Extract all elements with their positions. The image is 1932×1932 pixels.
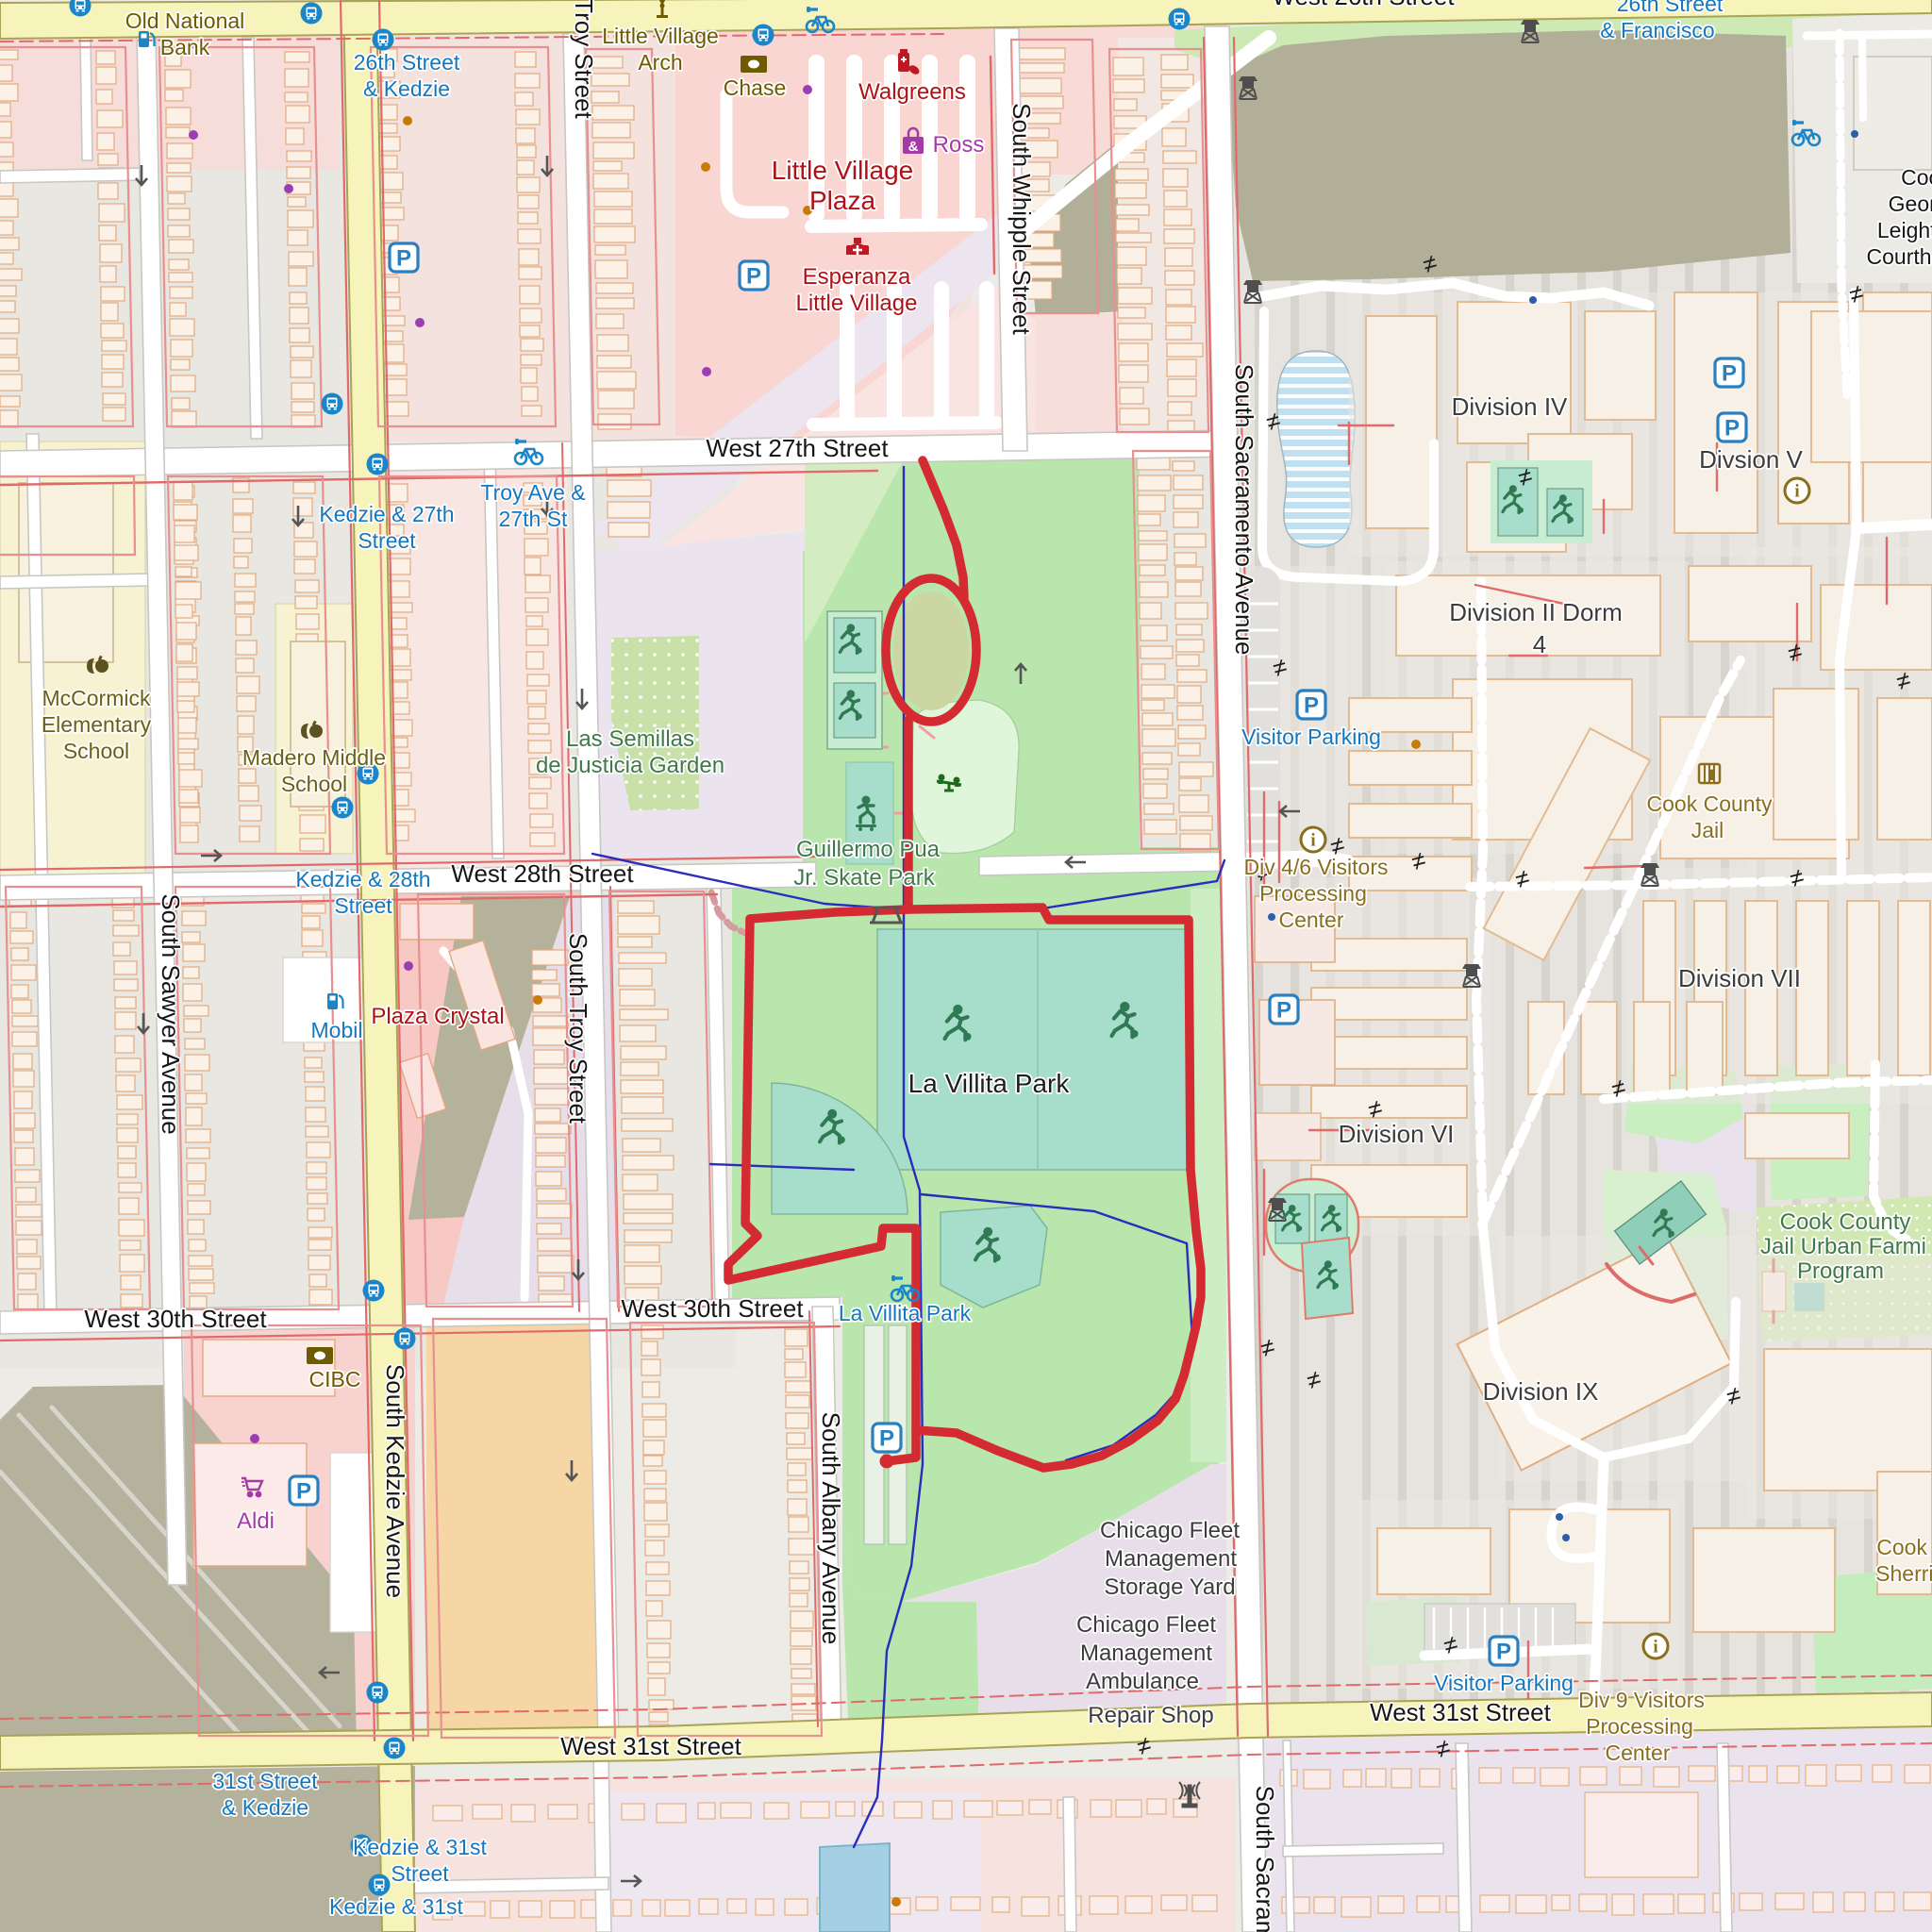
svg-text:P: P bbox=[1722, 361, 1737, 387]
svg-text:Esperanza: Esperanza bbox=[803, 264, 911, 290]
svg-text:West 30th Street: West 30th Street bbox=[621, 1294, 804, 1323]
svg-text:Cook Co: Cook Co bbox=[1876, 1535, 1932, 1559]
svg-text:Kedzie & 28th: Kedzie & 28th bbox=[295, 867, 430, 891]
svg-text:31st Street: 31st Street bbox=[212, 1769, 318, 1793]
svg-text:Chase: Chase bbox=[724, 75, 786, 100]
svg-text:Chicago Fleet: Chicago Fleet bbox=[1076, 1612, 1216, 1638]
svg-text:Div 4/6 Visitors: Div 4/6 Visitors bbox=[1244, 855, 1389, 879]
svg-text:Las Semillas: Las Semillas bbox=[566, 726, 694, 752]
svg-text:Guillermo Pua: Guillermo Pua bbox=[796, 837, 941, 862]
svg-text:CIBC: CIBC bbox=[309, 1367, 361, 1391]
svg-text:George: George bbox=[1889, 192, 1932, 216]
svg-text:Mobil: Mobil bbox=[311, 1018, 363, 1042]
svg-text:Aldi: Aldi bbox=[237, 1508, 275, 1534]
svg-text:Street: Street bbox=[358, 528, 416, 553]
svg-text:& Kedzie: & Kedzie bbox=[363, 76, 450, 101]
svg-text:Elementary: Elementary bbox=[42, 712, 152, 737]
svg-text:Kedzie & 31st: Kedzie & 31st bbox=[329, 1894, 464, 1919]
svg-text:South Troy Street: South Troy Street bbox=[564, 933, 592, 1124]
svg-text:Jail Urban Farmi: Jail Urban Farmi bbox=[1760, 1234, 1926, 1259]
svg-text:Walgreens: Walgreens bbox=[858, 79, 966, 105]
svg-text:de Justicia Garden: de Justicia Garden bbox=[536, 753, 724, 778]
svg-text:Program: Program bbox=[1797, 1258, 1884, 1284]
svg-text:South Sacram: South Sacram bbox=[1251, 1786, 1279, 1932]
svg-text:La Villita Park: La Villita Park bbox=[908, 1069, 1071, 1098]
svg-text:26th Street: 26th Street bbox=[1617, 0, 1724, 16]
svg-text:Troy Street: Troy Street bbox=[570, 0, 598, 120]
svg-text:South Kedzie Avenue: South Kedzie Avenue bbox=[381, 1364, 409, 1598]
svg-text:& Francisco: & Francisco bbox=[1600, 18, 1714, 42]
svg-text:Kedzie & 27th: Kedzie & 27th bbox=[319, 502, 454, 526]
svg-text:Leighton: Leighton bbox=[1877, 218, 1932, 242]
svg-text:South Sacramento Avenue: South Sacramento Avenue bbox=[1230, 364, 1258, 656]
svg-text:Divsion V: Divsion V bbox=[1699, 445, 1803, 474]
svg-text:West 31st Street: West 31st Street bbox=[560, 1732, 741, 1760]
svg-text:Cook County: Cook County bbox=[1647, 791, 1773, 816]
svg-text:P: P bbox=[1496, 1640, 1511, 1665]
svg-text:Cook: Cook bbox=[1901, 165, 1932, 190]
svg-text:Chicago Fleet: Chicago Fleet bbox=[1100, 1518, 1240, 1543]
svg-text:Repair Shop: Repair Shop bbox=[1088, 1703, 1213, 1728]
svg-text:& Kedzie: & Kedzie bbox=[222, 1795, 308, 1820]
svg-text:Troy Ave &: Troy Ave & bbox=[480, 480, 585, 505]
svg-text:South Albany Avenue: South Albany Avenue bbox=[817, 1412, 845, 1645]
svg-text:Little Village: Little Village bbox=[796, 291, 918, 316]
svg-text:&: & bbox=[908, 139, 919, 155]
svg-text:Visitor Parking: Visitor Parking bbox=[1434, 1671, 1574, 1695]
svg-text:Sherrif's: Sherrif's bbox=[1875, 1561, 1932, 1586]
svg-text:Division VI: Division VI bbox=[1339, 1120, 1455, 1148]
svg-text:i: i bbox=[1794, 482, 1799, 502]
svg-text:27th St: 27th St bbox=[499, 507, 568, 531]
svg-text:Plaza: Plaza bbox=[809, 186, 875, 215]
svg-text:Center: Center bbox=[1278, 908, 1343, 932]
svg-text:P: P bbox=[296, 1479, 311, 1505]
svg-text:P: P bbox=[1724, 416, 1740, 441]
svg-text:La Villita Park: La Villita Park bbox=[839, 1301, 972, 1325]
svg-text:Bank: Bank bbox=[160, 35, 210, 59]
svg-text:Processing: Processing bbox=[1586, 1714, 1693, 1739]
svg-text:School: School bbox=[281, 772, 347, 796]
svg-text:School: School bbox=[63, 739, 129, 763]
svg-text:26th Street: 26th Street bbox=[354, 50, 460, 75]
svg-text:Visitor Parking: Visitor Parking bbox=[1241, 724, 1381, 749]
svg-text:Ross: Ross bbox=[933, 132, 985, 158]
svg-text:Storage Yard: Storage Yard bbox=[1104, 1574, 1235, 1600]
svg-text:West 28th Street: West 28th Street bbox=[451, 859, 634, 888]
svg-text:P: P bbox=[1276, 998, 1291, 1024]
svg-text:Old National: Old National bbox=[125, 8, 245, 33]
svg-text:West 27th Street: West 27th Street bbox=[706, 434, 889, 462]
svg-text:P: P bbox=[1304, 693, 1319, 719]
svg-text:West 30th Street: West 30th Street bbox=[84, 1305, 267, 1333]
svg-text:Division IV: Division IV bbox=[1452, 392, 1568, 421]
svg-text:Division II Dorm: Division II Dorm bbox=[1449, 598, 1622, 626]
svg-text:P: P bbox=[746, 264, 761, 290]
svg-text:P: P bbox=[396, 246, 411, 272]
svg-text:Processing: Processing bbox=[1259, 881, 1367, 906]
svg-text:Little Village: Little Village bbox=[772, 156, 913, 185]
svg-text:Street: Street bbox=[334, 893, 392, 918]
svg-text:Courthouse: Courthouse bbox=[1867, 244, 1932, 269]
svg-text:Center: Center bbox=[1605, 1740, 1670, 1765]
svg-text:Jr. Skate Park: Jr. Skate Park bbox=[793, 865, 935, 891]
svg-text:South Whipple Street: South Whipple Street bbox=[1008, 103, 1036, 335]
svg-text:West 31st Street: West 31st Street bbox=[1370, 1698, 1551, 1726]
svg-text:Jail: Jail bbox=[1691, 818, 1724, 842]
svg-text:i: i bbox=[1310, 831, 1315, 851]
svg-text:i: i bbox=[1653, 1638, 1657, 1657]
svg-text:Div 9 Visitors: Div 9 Visitors bbox=[1578, 1688, 1705, 1712]
svg-text:Kedzie & 31st: Kedzie & 31st bbox=[353, 1835, 488, 1859]
svg-text:Street: Street bbox=[391, 1861, 449, 1886]
svg-text:4: 4 bbox=[1533, 630, 1546, 658]
svg-text:West 26th Street: West 26th Street bbox=[1272, 0, 1455, 10]
svg-text:Management: Management bbox=[1105, 1546, 1237, 1572]
svg-text:Arch: Arch bbox=[638, 50, 682, 75]
svg-text:Management: Management bbox=[1080, 1641, 1212, 1666]
svg-text:South Sawyer Avenue: South Sawyer Avenue bbox=[157, 893, 185, 1134]
svg-text:Little Village: Little Village bbox=[602, 24, 719, 48]
svg-text:Plaza Crystal: Plaza Crystal bbox=[371, 1004, 504, 1029]
svg-text:Division VII: Division VII bbox=[1678, 964, 1801, 992]
svg-text:Madero Middle: Madero Middle bbox=[242, 745, 386, 770]
svg-text:P: P bbox=[879, 1426, 894, 1452]
svg-text:Cook County: Cook County bbox=[1780, 1209, 1911, 1235]
svg-text:Division IX: Division IX bbox=[1483, 1377, 1599, 1406]
svg-text:McCormick: McCormick bbox=[42, 686, 151, 710]
svg-text:Ambulance: Ambulance bbox=[1086, 1669, 1199, 1694]
